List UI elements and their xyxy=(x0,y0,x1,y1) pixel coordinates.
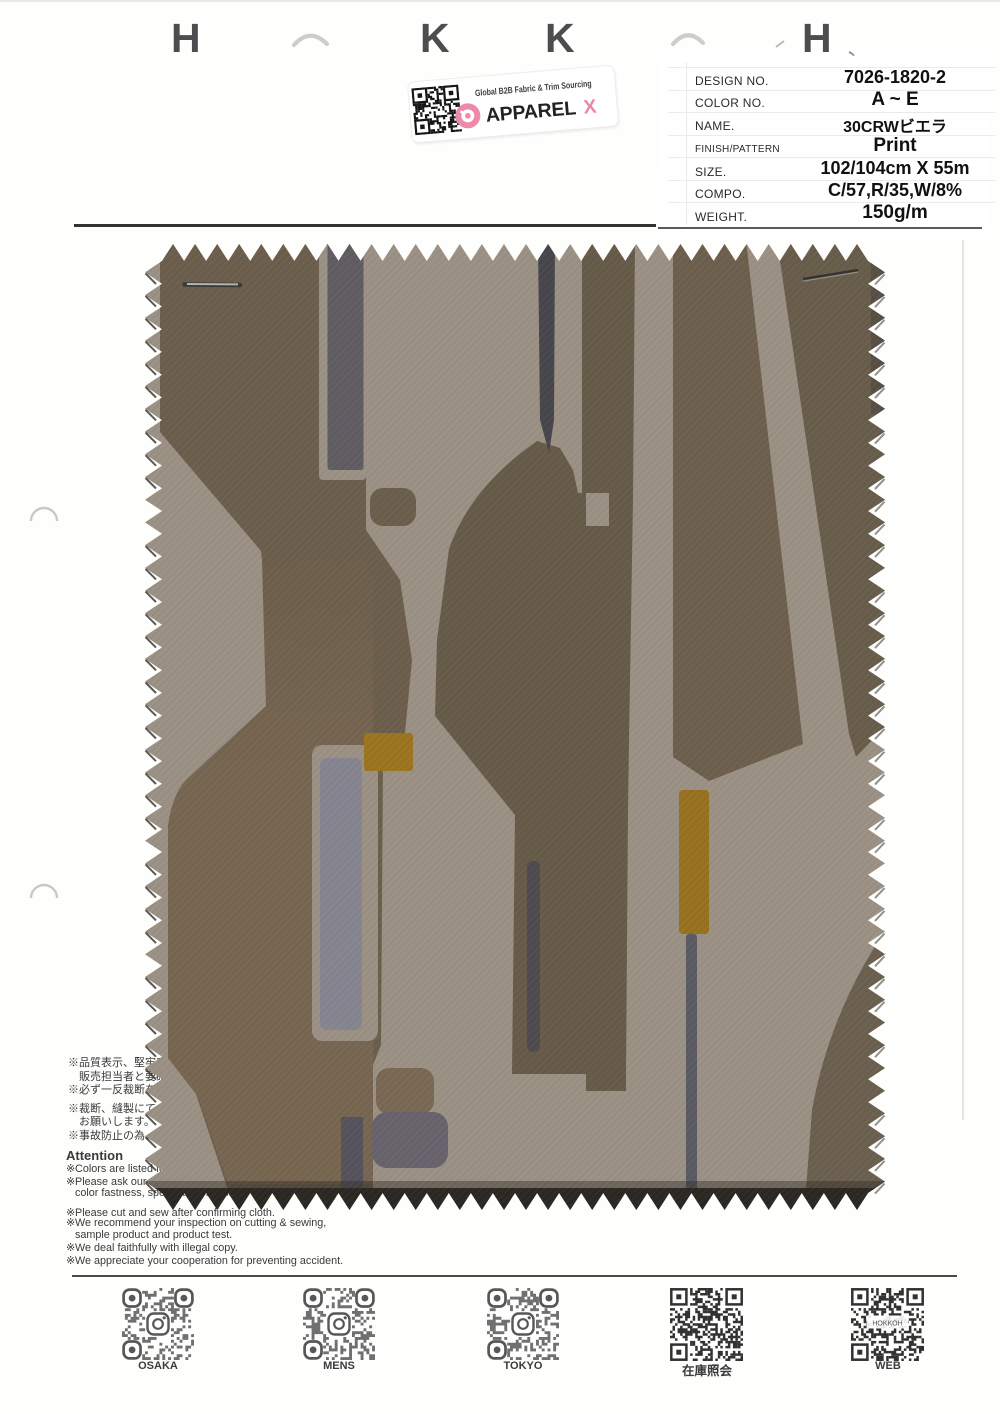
svg-text:HOKKOH: HOKKOH xyxy=(872,1321,902,1328)
